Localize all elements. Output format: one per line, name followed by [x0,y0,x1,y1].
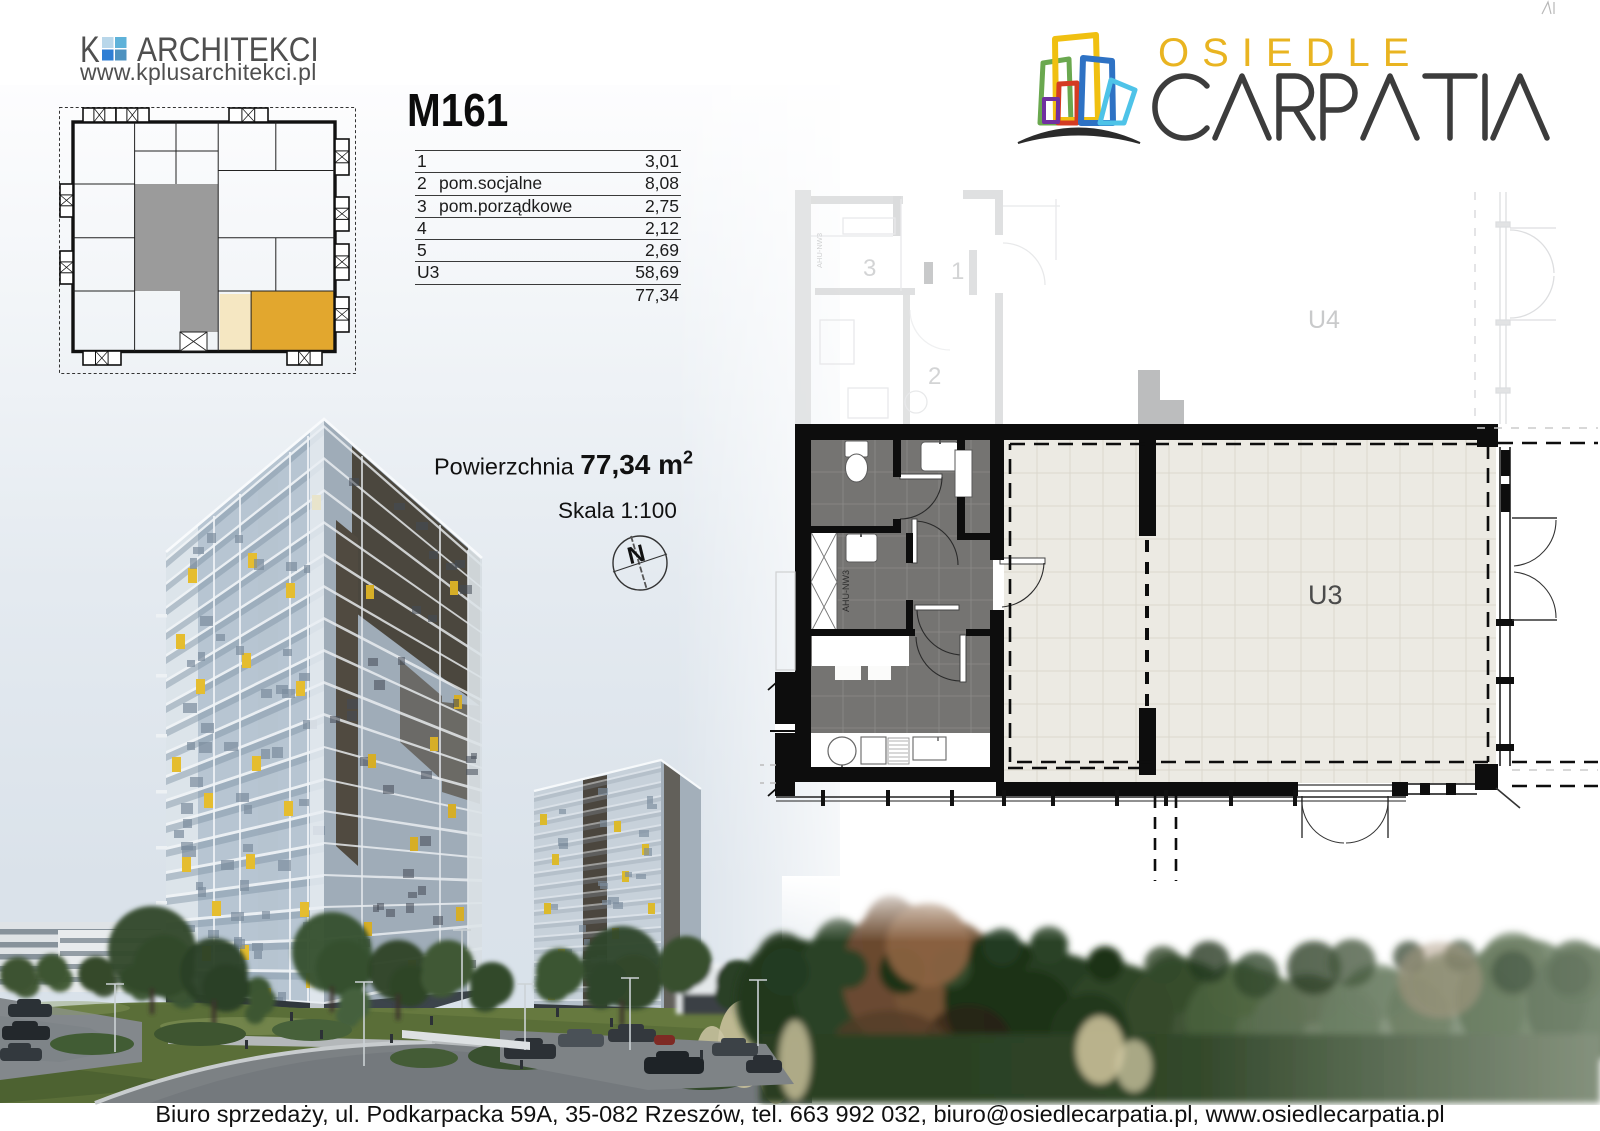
svg-text:1: 1 [951,258,964,285]
svg-text:U4: U4 [1308,306,1340,334]
svg-text:AHU-NW3: AHU-NW3 [815,233,824,268]
svg-text:OSIEDLE: OSIEDLE [1158,31,1422,75]
svg-text:2: 2 [928,363,941,390]
svg-text:AHU-NW3: AHU-NW3 [841,570,851,612]
svg-text:3: 3 [863,255,876,282]
svg-text:U3: U3 [1308,580,1343,610]
svg-text:N: N [625,540,648,570]
